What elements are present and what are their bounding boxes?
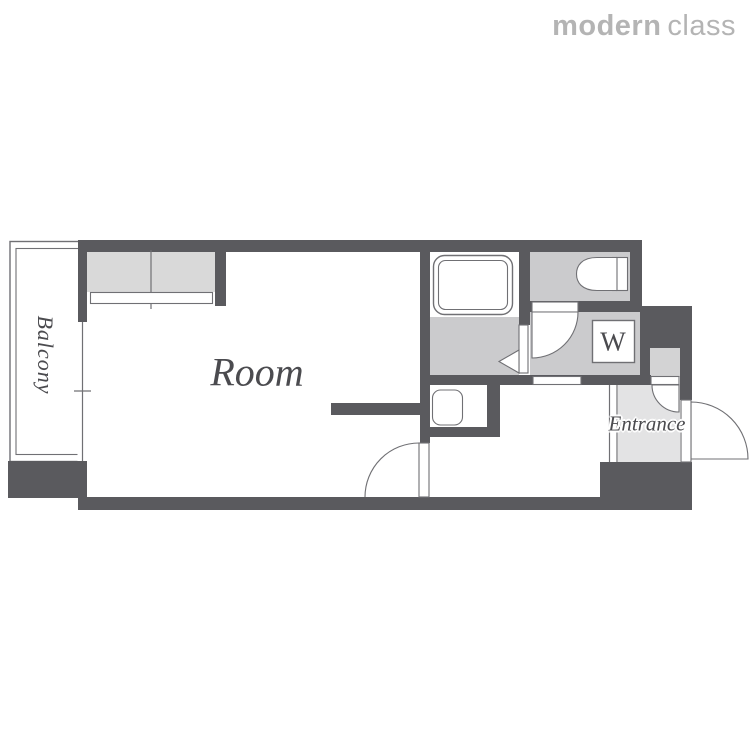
balcony-label: Balcony (32, 315, 58, 394)
washer-label: W (600, 327, 625, 358)
entrance-label: Entrance (609, 412, 686, 437)
wall-closet-right (215, 240, 226, 306)
wall-washroom-right (640, 306, 650, 377)
toilet-tank (617, 258, 628, 291)
floorplan-drawing (0, 0, 750, 750)
closet-sliding-door (91, 293, 213, 304)
floorplan-page: modernclass (0, 0, 750, 750)
wall-bath-toilet-divider (519, 240, 530, 325)
room-door (365, 443, 429, 497)
wall-nook-right (487, 384, 500, 437)
entrance-door (681, 400, 748, 462)
washbasin-icon (433, 390, 463, 425)
wall-room-stub (331, 403, 420, 415)
wall-room-right (420, 240, 430, 443)
hall-sliding-door (533, 377, 581, 385)
shoe-cabinet-floor (650, 348, 681, 377)
wall-balcony-block (8, 461, 87, 498)
room-door-leaf (419, 443, 429, 497)
bathtub-icon (434, 256, 513, 315)
toilet-icon (577, 258, 628, 291)
wall-left-upper (78, 240, 87, 322)
room-label: Room (210, 349, 303, 396)
entrance-door-swing (691, 402, 748, 459)
toilet-bowl (577, 258, 618, 291)
washroom-door-leaf (532, 302, 578, 312)
wall-right-upper (680, 338, 692, 400)
wall-top (78, 240, 642, 252)
room-door-swing (365, 443, 419, 497)
wall-nook-bottom (428, 427, 487, 437)
shoe-cabinet-leaf (651, 377, 679, 385)
bathtub-inner (439, 261, 508, 310)
bathroom-floor (430, 317, 519, 376)
wall-toilet-right (630, 240, 642, 312)
wall-bottom (78, 497, 692, 510)
bathroom-door-leaf (519, 325, 528, 373)
